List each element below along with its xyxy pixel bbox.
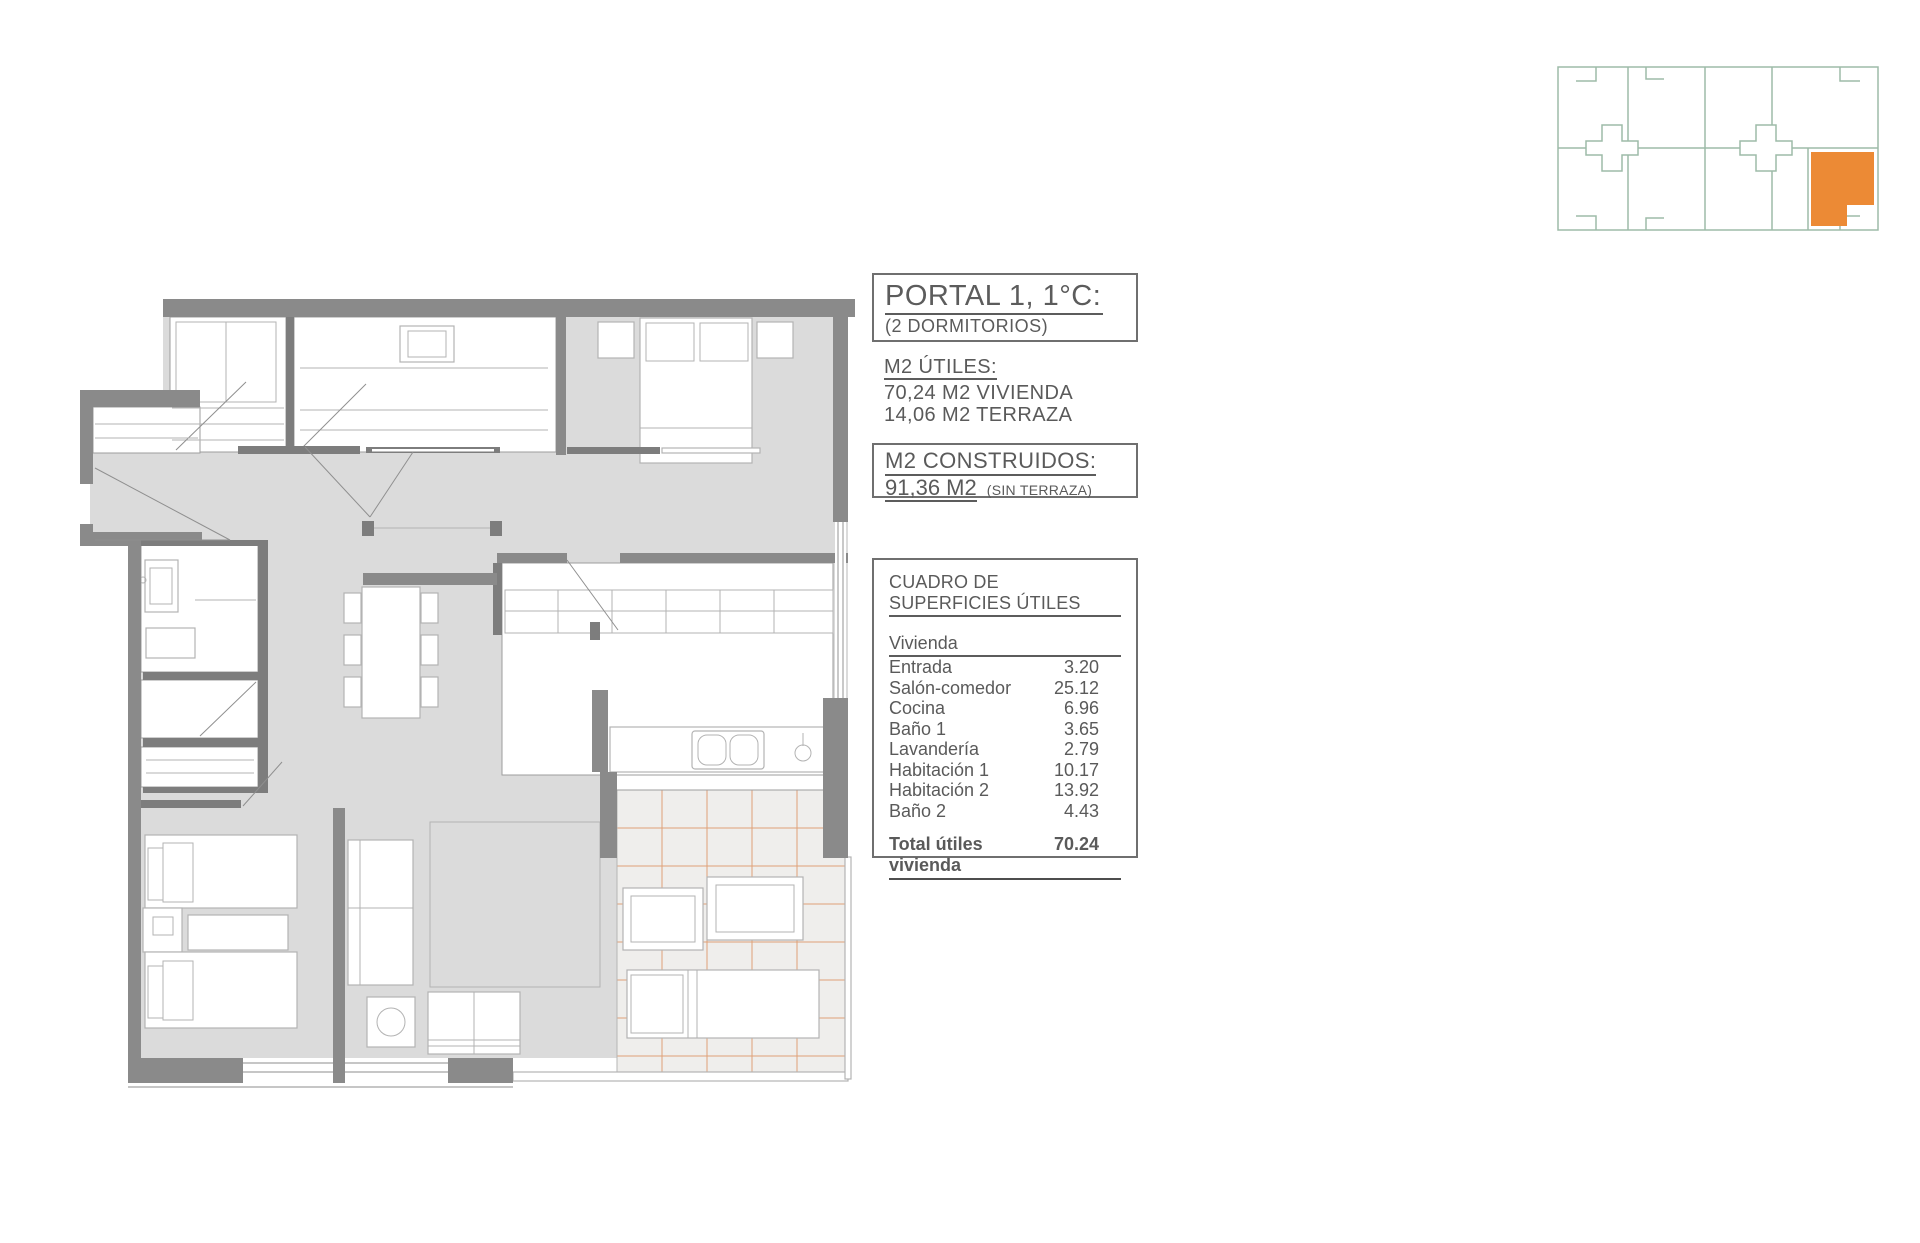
room-shower — [141, 680, 258, 738]
room-label: Baño 1 — [889, 719, 946, 740]
entry-closet — [93, 407, 200, 453]
column — [362, 521, 374, 536]
surfaces-table: CUADRO DE SUPERFICIES ÚTILES Vivienda En… — [872, 558, 1138, 858]
built-area-note: (SIN TERRAZA) — [987, 482, 1093, 498]
chair — [421, 593, 438, 623]
chair — [344, 635, 361, 665]
plan-sheet: PORTAL 1, 1°C: (2 DORMITORIOS) M2 ÚTILES… — [0, 0, 1920, 1243]
room-area: 10.17 — [1054, 760, 1099, 781]
table-row: Lavandería 2.79 — [889, 739, 1121, 760]
dining-table — [362, 587, 420, 718]
table-row: Habitación 1 10.17 — [889, 760, 1121, 781]
bed-single — [145, 835, 297, 908]
unit-title: PORTAL 1, 1°C: — [885, 280, 1103, 315]
room-area: 4.43 — [1064, 801, 1099, 822]
room-label: Habitación 1 — [889, 760, 989, 781]
table-row: Salón-comedor 25.12 — [889, 678, 1121, 699]
chair — [344, 677, 361, 707]
room-area: 3.20 — [1064, 657, 1099, 678]
table-row: Baño 2 4.43 — [889, 801, 1121, 822]
room-storage — [141, 747, 258, 787]
chair — [344, 593, 361, 623]
room-label: Habitación 2 — [889, 780, 989, 801]
room-label: Cocina — [889, 698, 945, 719]
bed-double — [640, 318, 752, 463]
table-row: Habitación 2 13.92 — [889, 780, 1121, 801]
kitchen-sink — [692, 731, 764, 769]
room-area: 6.96 — [1064, 698, 1099, 719]
usable-area-block: M2 ÚTILES: 70,24 M2 VIVIENDA 14,06 M2 TE… — [884, 356, 1144, 426]
terrace-door — [610, 775, 833, 790]
room-label: Entrada — [889, 657, 952, 678]
terrace-armchair — [623, 888, 703, 950]
table-row: Entrada 3.20 — [889, 657, 1121, 678]
built-area-heading: M2 CONSTRUIDOS: — [885, 448, 1096, 476]
room-label: Salón-comedor — [889, 678, 1011, 699]
usable-area-line1: 70,24 M2 VIVIENDA — [884, 382, 1144, 404]
side-table — [367, 997, 415, 1047]
title-box: PORTAL 1, 1°C: (2 DORMITORIOS) — [872, 273, 1138, 342]
room-label: Baño 2 — [889, 801, 946, 822]
chair — [421, 635, 438, 665]
room-area: 3.65 — [1064, 719, 1099, 740]
unit-subtitle: (2 DORMITORIOS) — [885, 316, 1125, 337]
total-label: Total útiles vivienda — [889, 834, 1054, 876]
bathtub — [146, 628, 195, 658]
room-area: 2.79 — [1064, 739, 1099, 760]
terrace-railing — [513, 1072, 848, 1081]
sofa — [348, 840, 413, 985]
nightstand-lamp — [143, 908, 182, 952]
table-row: Baño 1 3.65 — [889, 719, 1121, 740]
built-area-box: M2 CONSTRUIDOS: 91,36 M2 (SIN TERRAZA) — [872, 443, 1138, 498]
terrace-lounger — [627, 970, 819, 1038]
surfaces-table-title: CUADRO DE SUPERFICIES ÚTILES — [889, 572, 1121, 617]
chair — [421, 677, 438, 707]
table-row: Cocina 6.96 — [889, 698, 1121, 719]
terrace-railing-side — [845, 857, 851, 1079]
table-total-row: Total útiles vivienda 70.24 — [889, 834, 1121, 880]
bed-single — [145, 952, 297, 1028]
bench — [188, 915, 288, 950]
nightstand — [598, 322, 634, 358]
room-area: 13.92 — [1054, 780, 1099, 801]
surfaces-table-section: Vivienda — [889, 633, 1121, 657]
key-plan — [1558, 67, 1878, 230]
usable-area-heading: M2 ÚTILES: — [884, 356, 997, 380]
nightstand — [757, 322, 793, 358]
usable-area-line2: 14,06 M2 TERRAZA — [884, 404, 1144, 426]
room-label: Lavandería — [889, 739, 979, 760]
terrace-table — [707, 877, 803, 940]
room-area: 25.12 — [1054, 678, 1099, 699]
total-value: 70.24 — [1054, 834, 1099, 876]
column — [490, 521, 502, 536]
built-area-value: 91,36 M2 — [885, 476, 977, 502]
